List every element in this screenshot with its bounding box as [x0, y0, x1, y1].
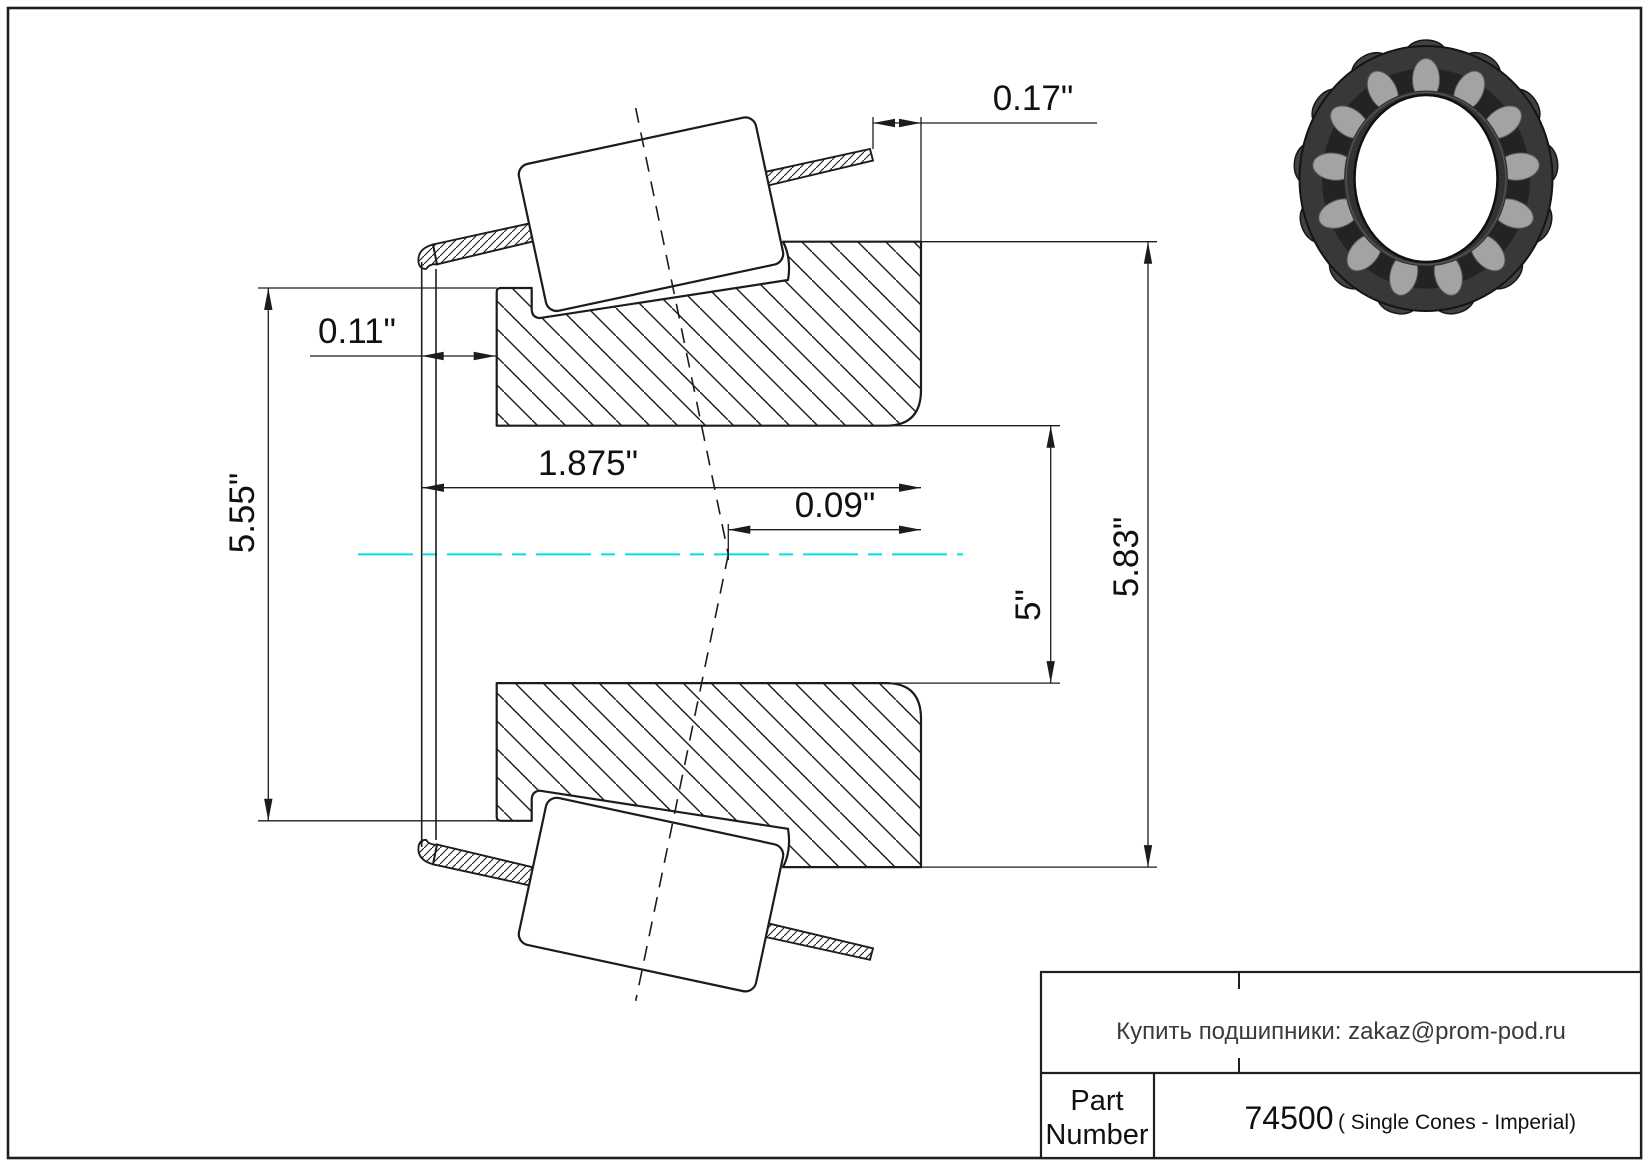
bearing-bore [1355, 95, 1498, 262]
bearing-drawing-canvas: 0.17" 0.11" 1.875" 0.09" 5.55" 5" 5.83" [0, 0, 1649, 1167]
part-label-line1: Part [1070, 1085, 1123, 1117]
dim-back-od: 5.83" [1107, 517, 1146, 598]
dim-width: 1.875" [538, 444, 638, 483]
contact-text: Купить подшипники: zakaz@prom-pod.ru [1116, 1018, 1566, 1045]
dim-effective-center: 0.09" [795, 486, 876, 525]
dim-bore: 5" [1009, 589, 1048, 621]
part-label-line2: Number [1045, 1119, 1148, 1151]
dim-front-od: 5.55" [223, 473, 262, 554]
dim-back-standout: 0.17" [993, 79, 1074, 118]
dim-front-standout: 0.11" [318, 312, 396, 351]
title-block: Купить подшипники: zakaz@prom-pod.ru Par… [1041, 972, 1641, 1158]
part-number-value: 74500 [1245, 1100, 1334, 1136]
part-series-label: ( Single Cones - Imperial) [1338, 1111, 1576, 1134]
